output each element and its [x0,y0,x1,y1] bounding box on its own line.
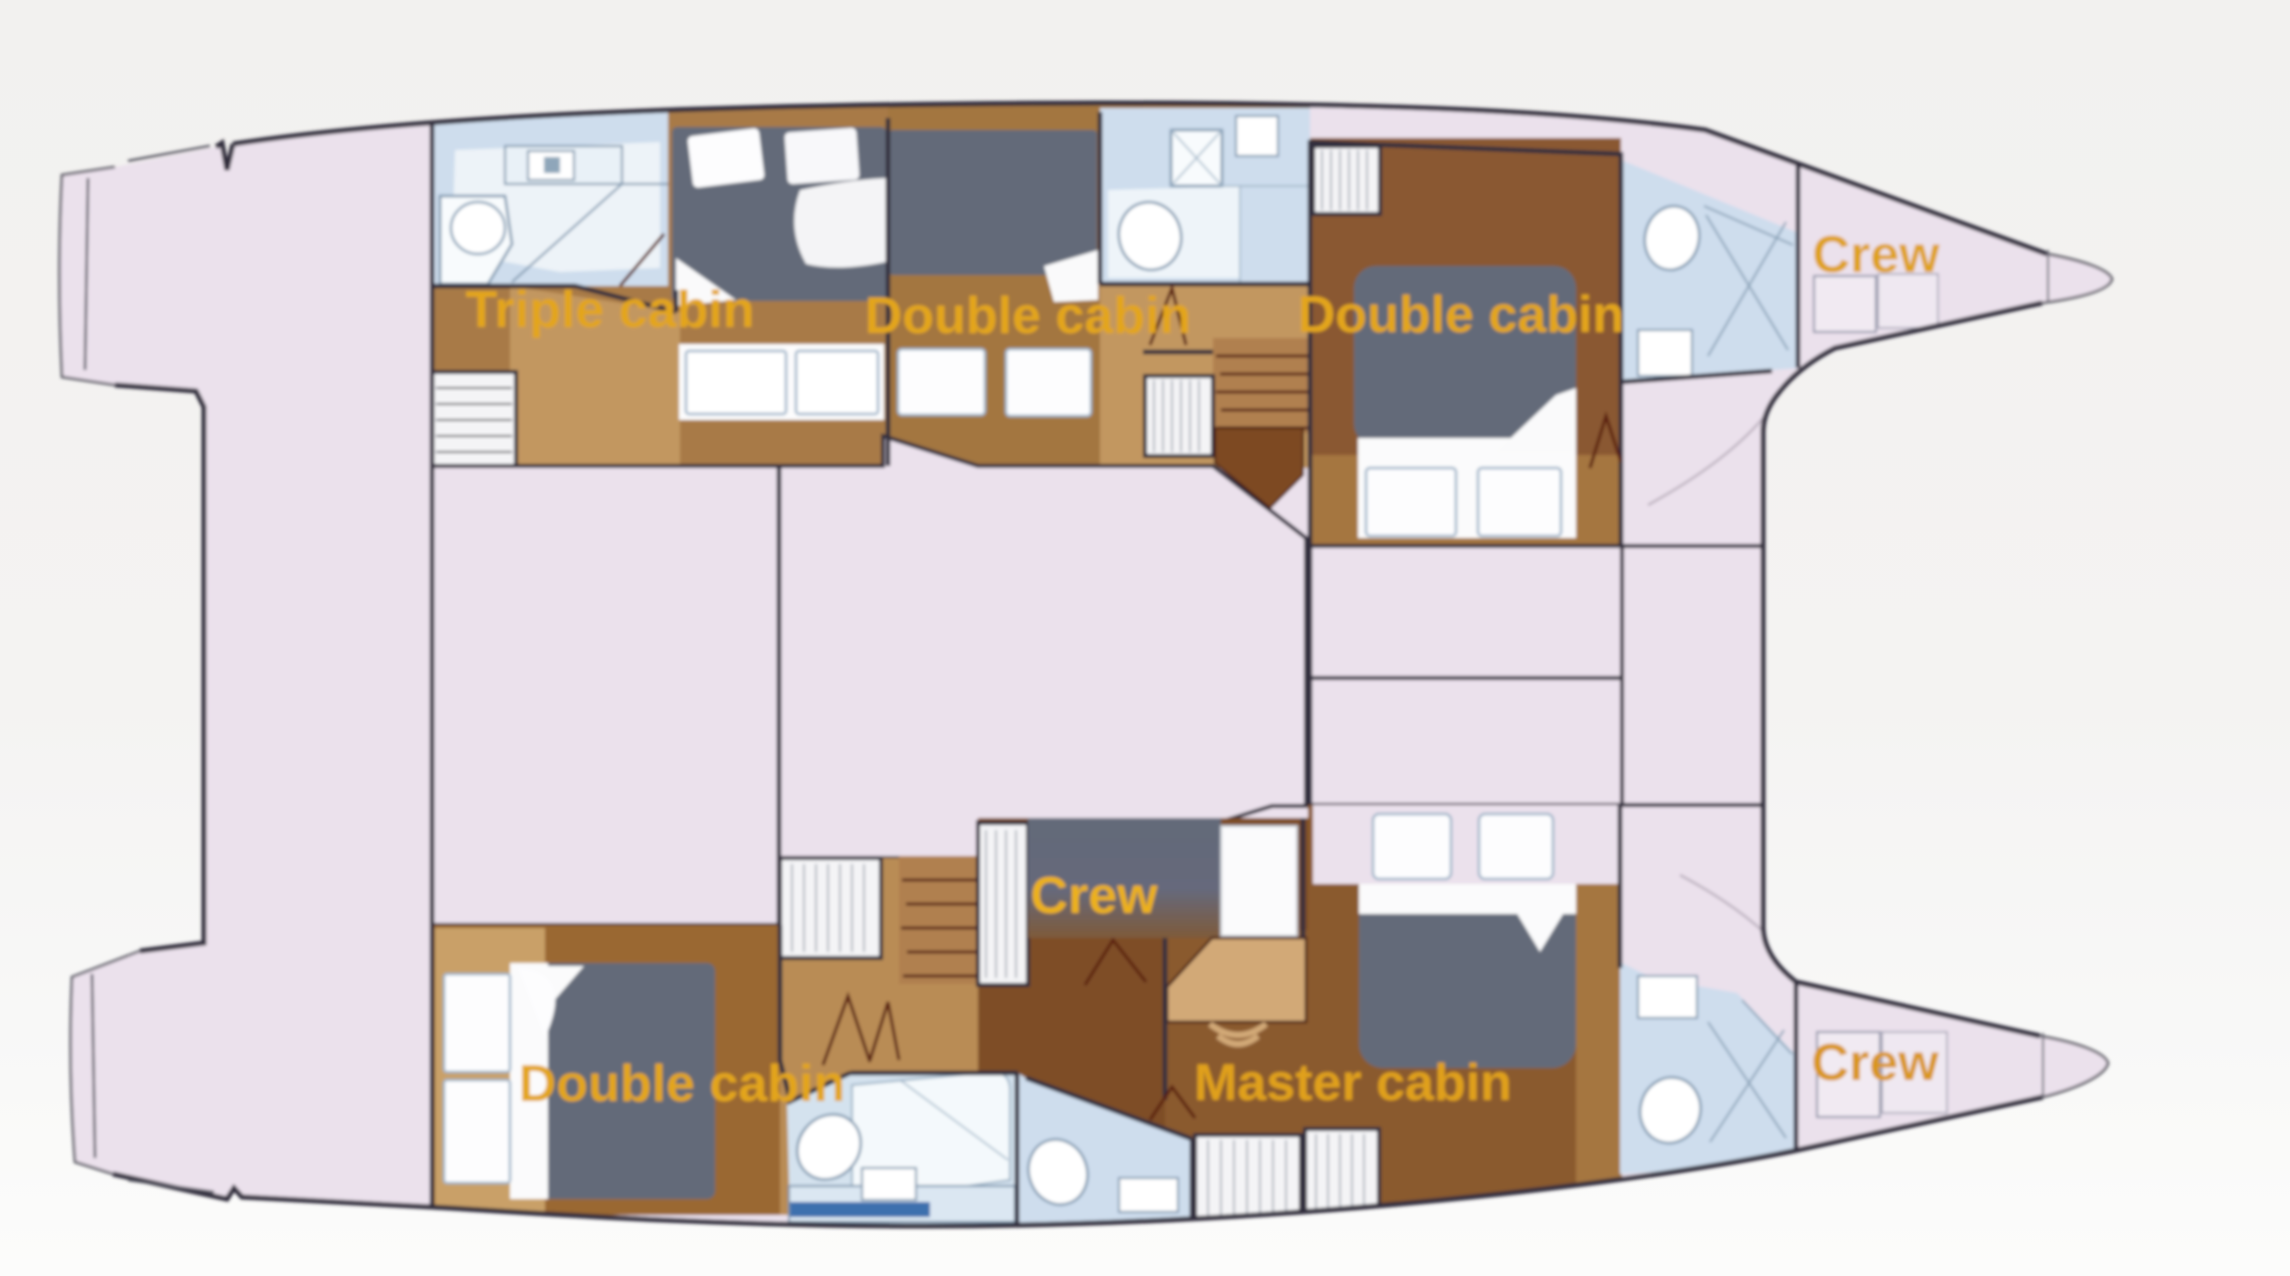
svg-text:Double cabin: Double cabin [865,287,1191,345]
svg-text:Double cabin: Double cabin [519,1055,845,1113]
svg-text:Crew: Crew [1030,867,1158,925]
svg-text:Double cabin: Double cabin [1298,286,1624,344]
svg-text:Crew: Crew [1811,1034,1939,1092]
svg-text:Master cabin: Master cabin [1194,1054,1512,1112]
svg-text:Triple cabin: Triple cabin [466,281,755,339]
svg-text:Crew: Crew [1812,226,1940,284]
